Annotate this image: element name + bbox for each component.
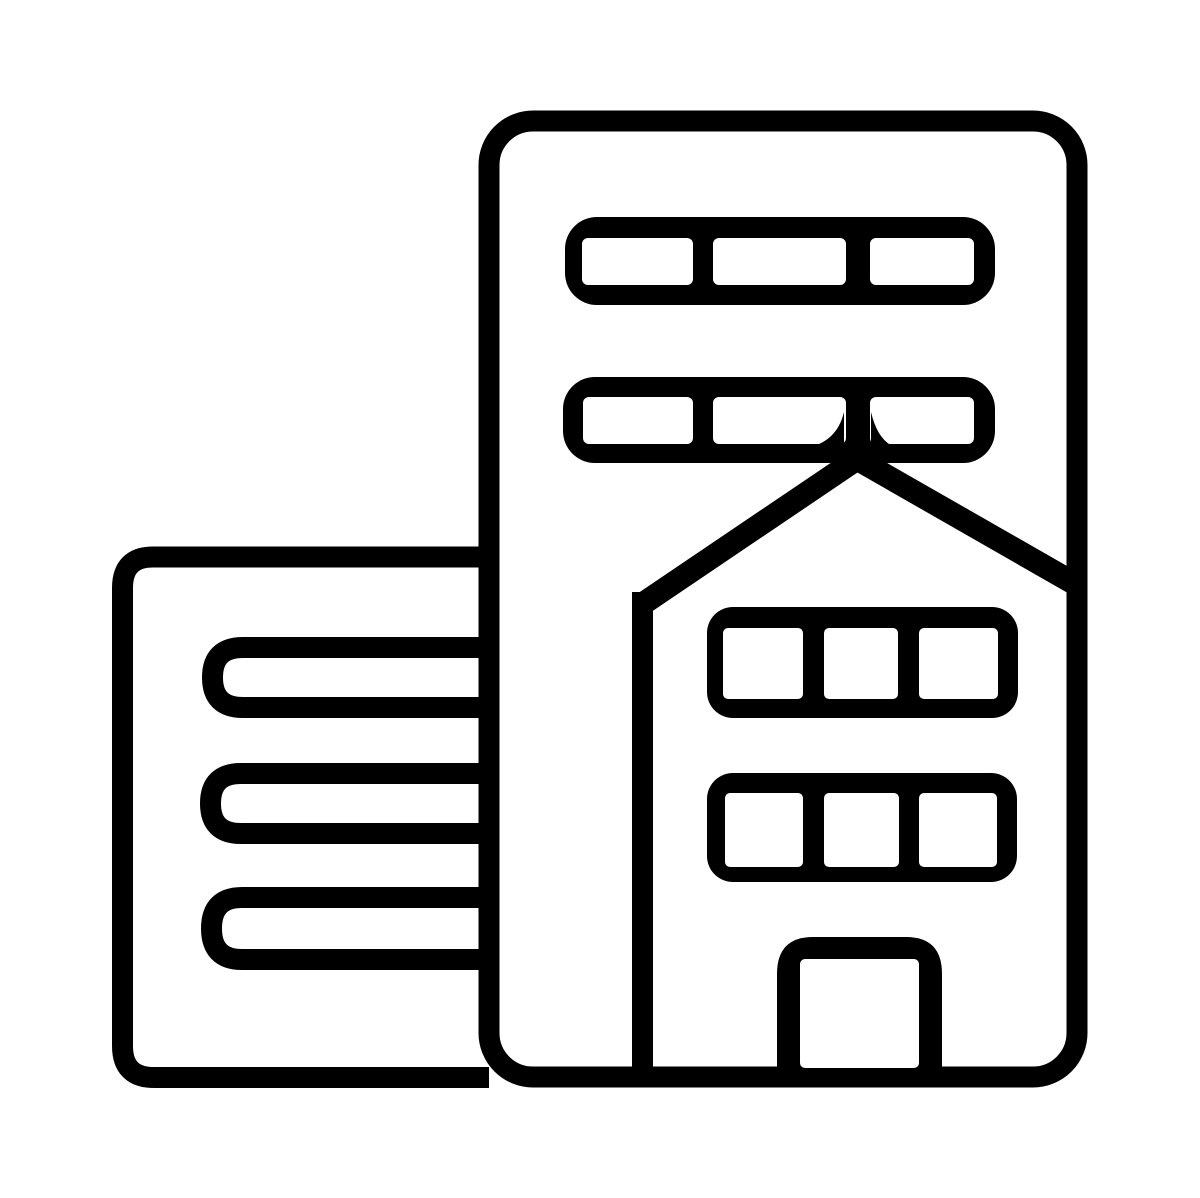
icon-background bbox=[0, 0, 1200, 1198]
window-pane bbox=[583, 397, 693, 444]
window-pane bbox=[919, 628, 998, 699]
window-pane bbox=[713, 397, 846, 444]
window-pane bbox=[824, 628, 898, 699]
house-door bbox=[777, 937, 942, 1081]
buildings-icon-svg bbox=[0, 0, 1200, 1198]
window-pane bbox=[870, 238, 974, 285]
window-pane bbox=[725, 793, 803, 867]
window-pane bbox=[723, 628, 803, 699]
tower-window-row-1 bbox=[565, 217, 995, 305]
window-pane bbox=[870, 397, 974, 444]
buildings-icon bbox=[0, 0, 1200, 1198]
window-pane bbox=[919, 793, 997, 867]
house-window-row-1 bbox=[707, 607, 1018, 718]
window-pane bbox=[824, 793, 899, 867]
window-pane bbox=[582, 238, 693, 285]
window-pane bbox=[713, 238, 846, 285]
tower-window-row-2 bbox=[563, 377, 995, 463]
house-window-row-2 bbox=[707, 773, 1017, 882]
door-opening bbox=[800, 959, 919, 1068]
